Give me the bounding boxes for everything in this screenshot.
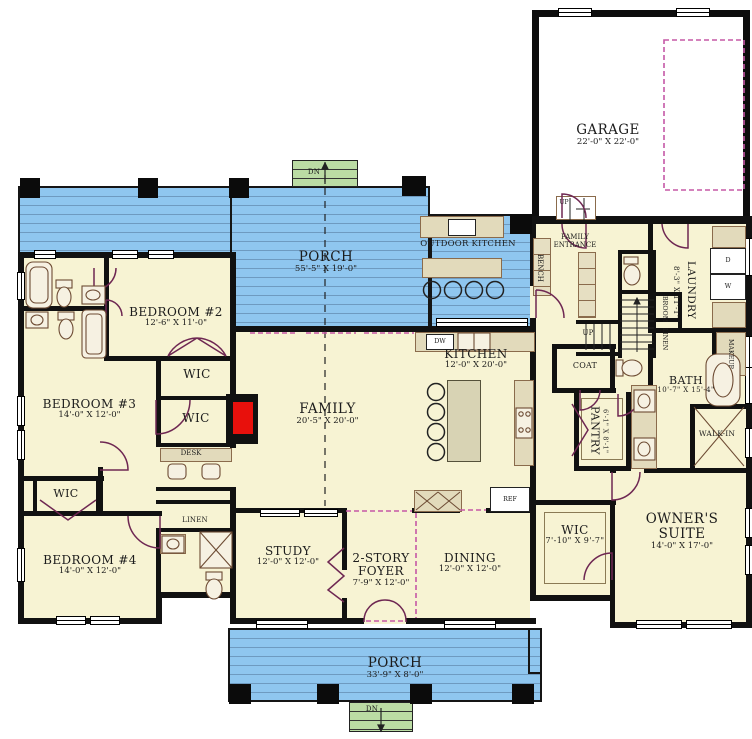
foyer-name: 2-STORY FOYER [346,552,416,579]
bedroom2-label: BEDROOM #2 12'-6" X 11'-0" [106,306,246,329]
stairs-up-label: UP [578,330,598,338]
owners-wic-dims: 7'-10" X 9'-7" [540,537,610,546]
dining-label: DINING 12'-0" X 12'-0" [420,552,520,575]
garage-label: GARAGE 22'-0" X 22'-0" [522,123,694,148]
owners-suite-name: OWNER'S SUITE [628,512,736,542]
steps-bottom-dn-label: DN [364,706,380,714]
owners-wic-name: WIC [540,524,610,537]
bath-label: BATH 10'-7" X 15'-4" [650,375,722,395]
steps-top-dn-label: DN [306,169,322,177]
porch-top-name: PORCH [256,250,396,265]
family-entrance-label: FAMILY ENTRANCE [548,234,602,250]
garage-name: GARAGE [522,123,694,138]
owners-suite-label: OWNER'S SUITE 14'-0" X 17'-0" [628,512,736,552]
foyer-dims: 7'-9" X 12'-0" [346,579,416,589]
family-dims: 20'-5" X 20'-0" [260,417,395,427]
garage-dims: 22'-0" X 22'-0" [522,138,694,148]
porch-bottom-dims: 33'-9" X 8'-0" [320,671,470,681]
foyer-label: 2-STORY FOYER 7'-9" X 12'-0" [346,552,416,588]
study-name: STUDY [238,545,338,558]
kitchen-label: KITCHEN 12'-0" X 20'-0" [420,348,532,371]
wic2-label: WIC [160,412,232,425]
broom-label: BROOM [661,295,668,323]
outdoor-kitchen-label: OUTDOOR KITCHEN [418,240,518,250]
kitchen-name: KITCHEN [420,348,532,361]
bedroom3-name: BEDROOM #3 [22,398,157,411]
study-label: STUDY 12'-0" X 12'-0" [238,545,338,568]
bedroom2-name: BEDROOM #2 [106,306,246,319]
dining-name: DINING [420,552,520,565]
floor-plan: DW REF D W [0,0,752,739]
laundry-name: LAUNDRY [684,240,696,340]
bedroom3-label: BEDROOM #3 14'-0" X 12'-0" [22,398,157,421]
kitchen-dims: 12'-0" X 20'-0" [420,361,532,371]
makeup-label: MAKEUP [727,330,734,378]
walkin-shower [416,407,744,510]
wic3-label: WIC [35,488,97,500]
bath-dims: 10'-7" X 15'-4" [650,387,722,395]
bar-stools [424,282,504,461]
linen-left-label: LINEN [162,517,228,525]
pantry-name: PANTRY [588,398,600,462]
family-name: FAMILY [260,402,395,417]
study-dims: 12'-0" X 12'-0" [238,558,338,568]
laundry-dims: 8'-3" X 11'-1" [671,246,679,338]
owners-suite-dims: 14'-0" X 17'-0" [628,542,736,552]
bench-label: BENCH [535,240,543,296]
porch-bottom-name: PORCH [320,656,470,671]
bedroom4-name: BEDROOM #4 [20,554,160,567]
porch-top-dims: 55'-5" X 19'-0" [256,265,396,275]
linen-right-label: LINEN [661,324,668,354]
bedroom4-dims: 14'-0" X 12'-0" [20,567,160,577]
porch-top-label: PORCH 55'-5" X 19'-0" [256,250,396,275]
owners-wic-label: WIC 7'-10" X 9'-7" [540,524,610,546]
bedroom4-label: BEDROOM #4 14'-0" X 12'-0" [20,554,160,577]
garage-up-label: UP [556,200,572,207]
wic1-label: WIC [160,368,234,381]
dining-dims: 12'-0" X 12'-0" [420,565,520,575]
family-label: FAMILY 20'-5" X 20'-0" [260,402,395,427]
bedroom2-dims: 12'-6" X 11'-0" [106,319,246,329]
desk-label: DESK [162,450,220,458]
pantry-dims: 6'-1" X 8'-1" [601,402,608,460]
porch-bottom-label: PORCH 33'-9" X 8'-0" [320,656,470,681]
coat-label: COAT [560,362,610,371]
plan-linework-overlay [0,0,752,739]
bedroom3-dims: 14'-0" X 12'-0" [22,411,157,421]
walkin-label: WALK-IN [692,430,742,438]
